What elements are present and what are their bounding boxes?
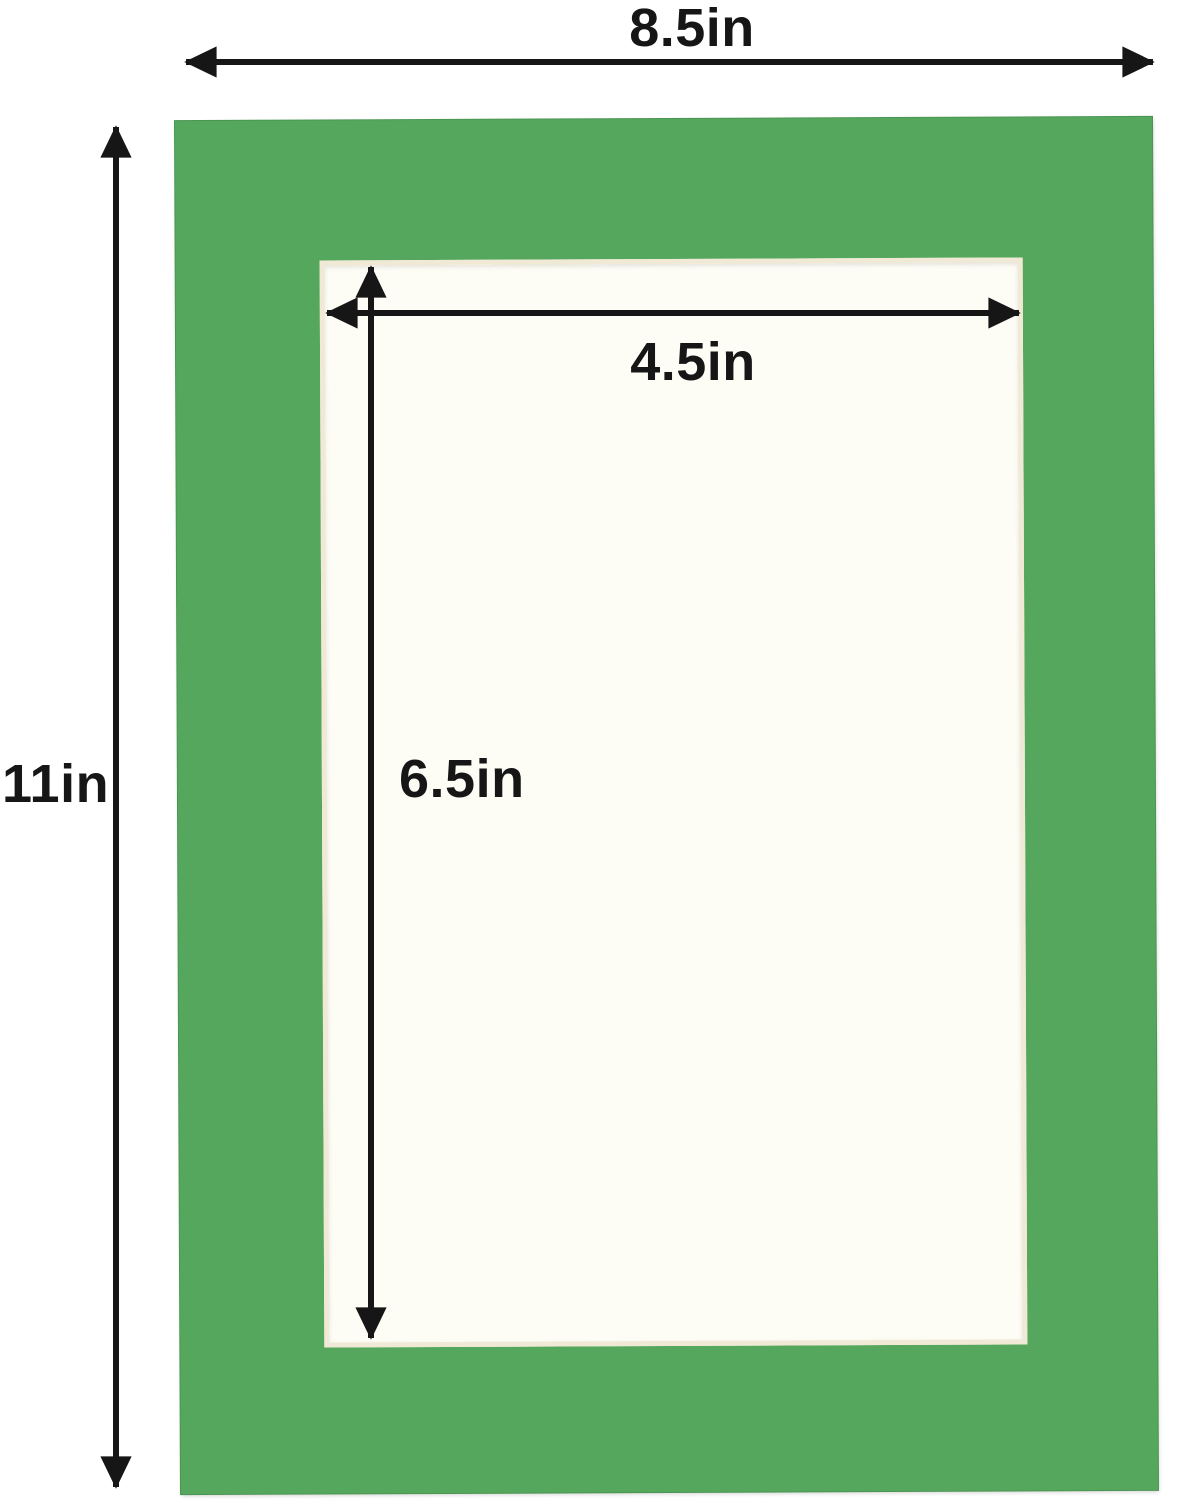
opening-height-label: 6.5in [399, 751, 619, 808]
mat-dimension-diagram: 8.5in 11in 4.5in 6.5in [0, 0, 1179, 1500]
green-mat-board [175, 117, 1158, 1494]
outer-width-label: 8.5in [562, 0, 822, 57]
opening-width-label: 4.5in [563, 334, 823, 391]
outer-height-label: 11in [2, 756, 116, 813]
